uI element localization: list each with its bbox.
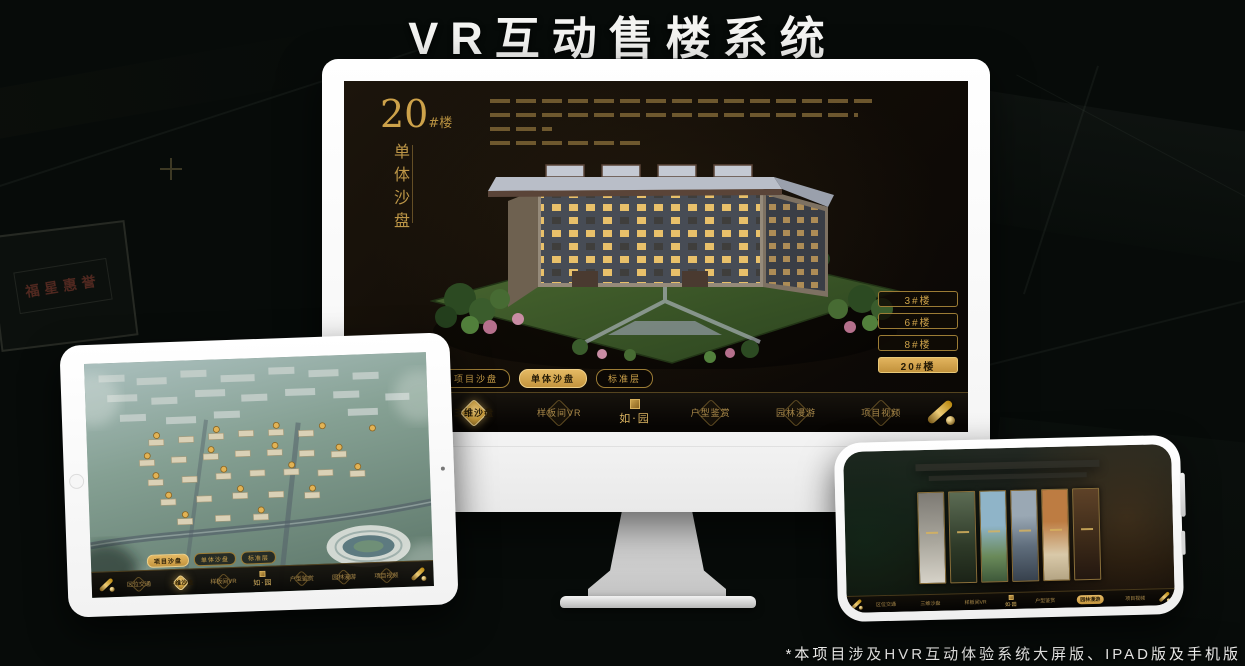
seal-icon [1008, 594, 1013, 599]
nav-item[interactable]: 样板间VR [206, 569, 241, 592]
phone-device: 区位交通三维沙盘样板间VR 如·园 户型鉴赏园林漫游项目视频 [834, 435, 1184, 622]
subtab[interactable]: 项目沙盘 [147, 554, 189, 568]
brand-logo-name: 如·园 [245, 577, 281, 588]
courtyard-gate-beam [929, 472, 1087, 481]
seal-icon [259, 571, 265, 577]
floor-button[interactable]: 6#楼 [878, 313, 958, 329]
monitor-stand-base [560, 596, 756, 608]
floor-button[interactable]: 20#楼 [878, 357, 958, 373]
tablet-screen: 项目沙盘单体沙盘标准层 区位交通 三维沙盘 [84, 352, 434, 598]
monitor-stand [588, 508, 726, 600]
subtab[interactable]: 标准层 [596, 369, 653, 388]
nav-group-left: 区位交通 三维沙盘 样板间VR [117, 569, 245, 595]
block-subtitle: 单体沙盘 [388, 143, 412, 235]
nav-group-right: 户型鉴赏 园林漫游 项目视频 [668, 396, 924, 430]
phone-navbar: 区位交通三维沙盘样板间VR 如·园 户型鉴赏园林漫游项目视频 [847, 588, 1175, 613]
footnote: *本项目涉及HVR互动体验系统大屏版、IPAD版及手机版 [786, 643, 1241, 664]
brand-logo: 如·园 [998, 594, 1024, 608]
phone-side-button[interactable] [1180, 473, 1186, 517]
nav-item[interactable]: 样板间VR [530, 396, 588, 430]
nav-item[interactable]: 户型鉴赏 [1032, 595, 1058, 605]
nav-item[interactable]: 三维沙盘 [164, 571, 199, 594]
block-unit: #楼 [428, 116, 452, 131]
building-render-viewport[interactable] [430, 149, 900, 369]
nav-item[interactable]: 园林漫游 [767, 396, 825, 430]
scroll-menu-icon[interactable] [924, 398, 958, 428]
brand-logo: 如·园 [602, 399, 668, 426]
block-title: 20#楼 [380, 95, 452, 133]
nav-item[interactable]: 区位交通 [873, 599, 899, 609]
phone-volume-button[interactable] [1181, 531, 1186, 555]
scene-thumbnail[interactable] [917, 491, 946, 584]
tablet-camera-icon [441, 467, 445, 471]
scene-thumbnail[interactable] [1010, 489, 1039, 582]
nav-item[interactable]: 三维沙盘 [445, 396, 503, 430]
monitor-subtabs: 项目沙盘单体沙盘标准层 [442, 369, 653, 388]
brand-logo: 如·园 [244, 570, 281, 588]
nav-item[interactable]: 样板间VR [962, 597, 990, 607]
scene-thumbnail[interactable] [948, 491, 977, 584]
nav-item[interactable]: 三维沙盘 [917, 598, 943, 608]
nav-item[interactable]: 项目视频 [369, 564, 404, 587]
block-number: 20 [380, 92, 428, 136]
compass-star-icon [160, 158, 182, 180]
scroll-menu-icon[interactable] [409, 565, 428, 582]
floor-button[interactable]: 8#楼 [878, 335, 958, 351]
nav-item[interactable]: 区位交通 [122, 572, 157, 595]
nav-item[interactable]: 园林漫游 [1077, 594, 1103, 604]
subtab[interactable]: 单体沙盘 [519, 369, 587, 388]
block-description-lines [490, 99, 872, 155]
scene-thumbnail[interactable] [1072, 488, 1101, 581]
nav-item[interactable]: 户型鉴赏 [284, 566, 319, 589]
scene-thumbnail[interactable] [1041, 488, 1070, 581]
block-title-rule [412, 145, 413, 223]
seal-icon [630, 399, 640, 409]
phone-screen: 区位交通三维沙盘样板间VR 如·园 户型鉴赏园林漫游项目视频 [843, 444, 1175, 613]
tablet-home-button[interactable] [69, 474, 85, 490]
background-plaque: 福星惠誉 [0, 220, 139, 352]
subtab[interactable]: 标准层 [241, 550, 276, 564]
subtab[interactable]: 单体沙盘 [194, 552, 236, 566]
scroll-menu-icon[interactable] [850, 598, 865, 611]
scroll-menu-icon[interactable] [97, 576, 116, 593]
brand-logo-name: 如·园 [998, 600, 1024, 608]
nav-item[interactable]: 项目视频 [852, 396, 910, 430]
nav-item[interactable]: 户型鉴赏 [682, 396, 740, 430]
background-plaque-text: 福星惠誉 [13, 258, 112, 314]
scene-gallery [917, 488, 1101, 584]
scene-thumbnail[interactable] [979, 490, 1008, 583]
subtab[interactable]: 项目沙盘 [442, 369, 510, 388]
promo-canvas: 福星惠誉 VR互动售楼系统 20#楼 单体沙盘 [0, 0, 1245, 666]
floor-button-group: 3#楼6#楼8#楼20#楼 [878, 291, 958, 373]
floor-button[interactable]: 3#楼 [878, 291, 958, 307]
nav-item[interactable]: 园林漫游 [327, 565, 362, 588]
nav-group-right: 户型鉴赏园林漫游项目视频 [1024, 593, 1157, 605]
nav-item[interactable]: 项目视频 [1122, 593, 1148, 603]
tablet-device: 项目沙盘单体沙盘标准层 区位交通 三维沙盘 [59, 332, 458, 617]
nav-group-right: 户型鉴赏 园林漫游 项目视频 [280, 563, 408, 589]
nav-group-left: 区位交通三维沙盘样板间VR [865, 597, 998, 609]
scroll-menu-icon[interactable] [1157, 591, 1172, 604]
brand-logo-name: 如·园 [602, 410, 668, 426]
page-title: VR互动售楼系统 [0, 2, 1245, 67]
courtyard-gate-beam [916, 460, 1100, 471]
